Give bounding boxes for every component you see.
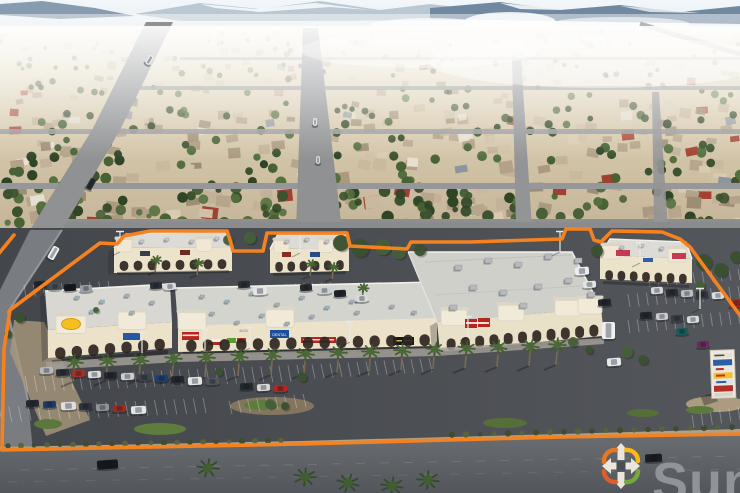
back-sign [282,252,291,257]
blue-awning [643,258,653,262]
haze-patch [300,32,540,68]
pylon-panel-blue [713,359,732,366]
aerial-photo: DENTAL 4620 [0,0,740,493]
pink-sign [672,253,686,259]
blue-sign [123,333,140,340]
rooftop-address-marking: 4620 [239,328,249,333]
pink-sign [616,250,630,256]
back-sign [180,250,190,255]
aerial-photo-canvas: DENTAL 4620 [0,0,740,493]
back-sign [140,251,150,256]
pylon-panel-red [714,385,733,392]
sun-logo-text: Sun [652,452,740,493]
yellow-oval-sign [62,319,81,330]
back-sign [310,252,320,257]
dental-sign-label: DENTAL [272,333,286,337]
